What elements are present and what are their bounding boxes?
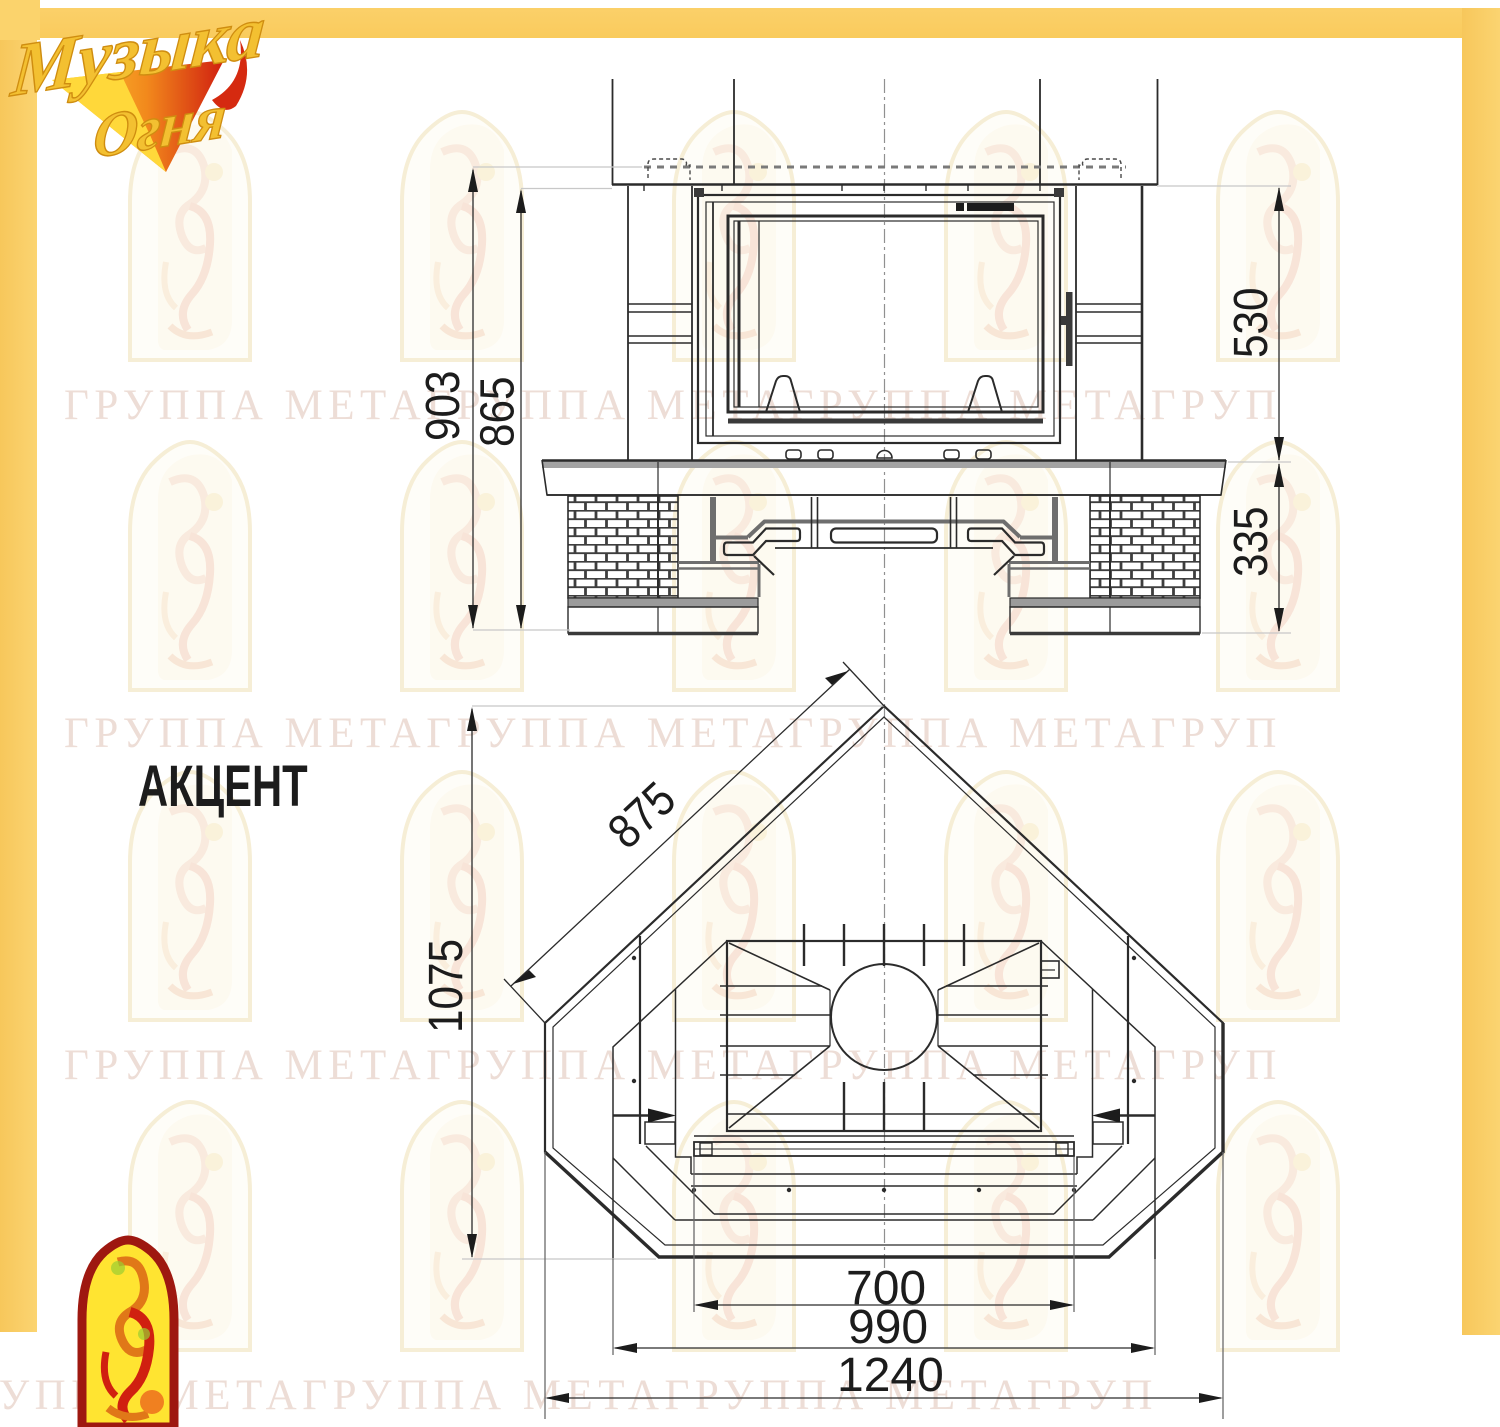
svg-text:335: 335 [1223, 507, 1277, 577]
svg-text:865: 865 [470, 377, 524, 447]
svg-text:1240: 1240 [837, 1349, 944, 1402]
svg-text:АКЦЕНТ: АКЦЕНТ [138, 753, 308, 818]
svg-text:1075: 1075 [418, 939, 472, 1033]
svg-text:990: 990 [848, 1301, 928, 1354]
svg-text:530: 530 [1223, 288, 1277, 358]
svg-text:903: 903 [415, 371, 469, 441]
